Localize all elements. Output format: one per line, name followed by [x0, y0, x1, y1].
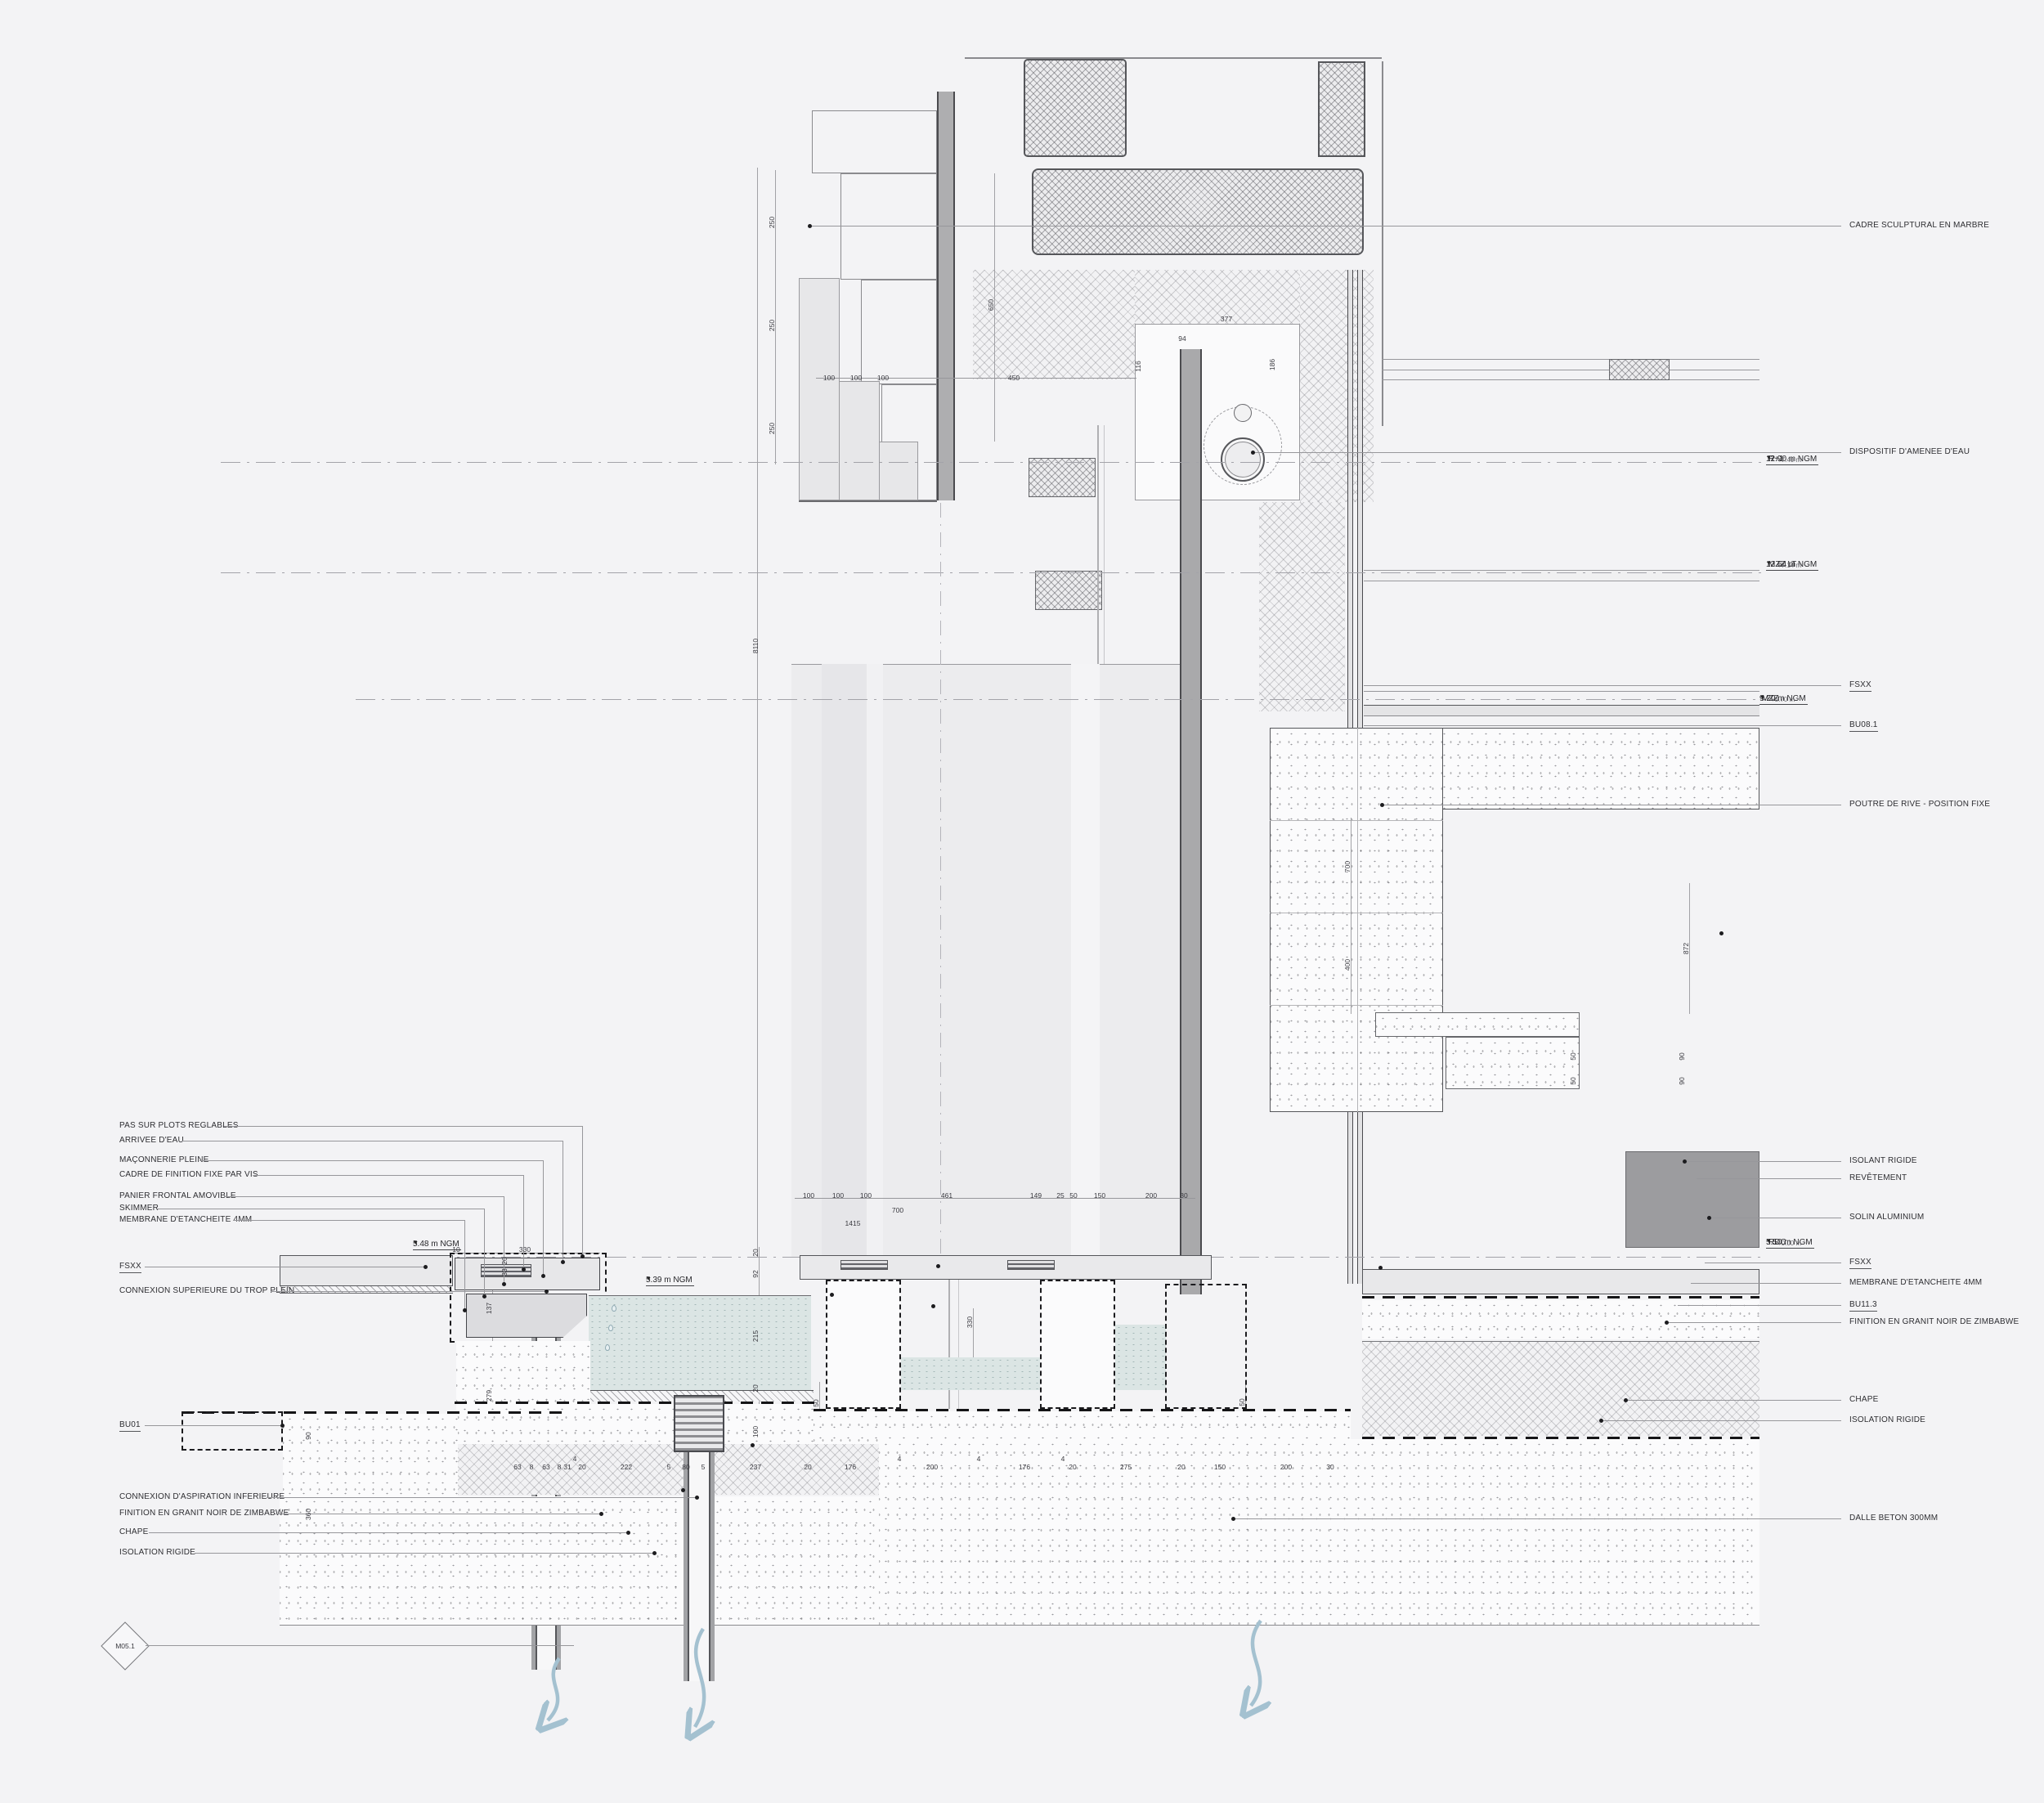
concrete-step-2: [1446, 1037, 1580, 1089]
slab-hatch-r1: [1609, 359, 1670, 380]
leader-dot: [931, 1304, 935, 1308]
leader-line: [199, 1160, 543, 1161]
wall-band-upper: [937, 92, 955, 500]
dimension-text: 100: [850, 374, 862, 382]
leader-dot: [502, 1282, 506, 1286]
leader-dot: [561, 1260, 565, 1264]
dimension-text: 100: [832, 1191, 844, 1200]
dimension-text: 650: [987, 299, 995, 311]
dimension-text: 200: [1145, 1191, 1157, 1200]
annotation-label: CONNEXION SUPERIEURE DU TROP PLEIN: [119, 1286, 294, 1296]
leader-dot: [626, 1531, 630, 1535]
dimension-text: 63: [513, 1463, 521, 1471]
pier-2: [1040, 1280, 1115, 1409]
leader-line: [1253, 452, 1841, 453]
annotation-label: FSXX: [119, 1262, 141, 1273]
leader-line: [145, 1425, 282, 1426]
detail-reference-leader: [146, 1645, 574, 1646]
leader-line: [1678, 1305, 1841, 1306]
leader-line: [254, 1175, 524, 1176]
elevation-offset: +0.00 m: [1766, 1240, 1801, 1247]
leader-dot: [424, 1265, 428, 1269]
dimension-text: 150: [1094, 1191, 1105, 1200]
leader-line-drop: [582, 1126, 583, 1256]
water-drop-icon: [608, 1325, 613, 1331]
dimension-text: 4: [1061, 1455, 1065, 1463]
dimension-text: 400: [1343, 959, 1351, 971]
dimension-text: 330: [966, 1316, 974, 1328]
dimension-text: 30: [1326, 1463, 1334, 1471]
dimension-text: 20: [500, 1257, 509, 1264]
leader-line: [224, 1196, 504, 1197]
slab-line-r1-a: [1382, 359, 1759, 360]
screed-under-pool: [458, 1404, 814, 1444]
dimension-text: 50: [812, 1399, 820, 1406]
leader-line-drop: [523, 1175, 524, 1269]
insulation-right: [1362, 1341, 1759, 1436]
block-b-gridline-v: [1357, 728, 1358, 1112]
leader-dot: [1683, 1159, 1687, 1164]
level-line-mzz: [356, 699, 1766, 700]
deck-underlayer: [280, 1286, 453, 1294]
annotation-label: PANIER FRONTAL AMOVIBLE: [119, 1191, 236, 1201]
slab-line-r1-c: [1382, 379, 1759, 380]
leader-dot: [545, 1289, 549, 1294]
dimension-text: 63: [542, 1463, 549, 1471]
dimension-text: 700: [1343, 861, 1351, 872]
dimension-text: 100: [823, 374, 835, 382]
mid-stripe-3: [867, 664, 883, 1257]
dimension-text: 222: [621, 1463, 632, 1471]
dimension-text: 250: [768, 217, 776, 228]
frame-cut-1: [1029, 458, 1096, 497]
coping-vent-2: [1007, 1260, 1055, 1270]
coping-vent-1: [840, 1260, 888, 1270]
leader-line: [809, 226, 1841, 226]
dimension-text: 8110: [751, 639, 760, 653]
dimension-text: 90: [1678, 1052, 1686, 1060]
annotation-label: FSXX: [1849, 1258, 1871, 1269]
detail-reference-diamond-icon[interactable]: M05.1: [101, 1621, 149, 1670]
elevation-value: 5.39 m NGM: [646, 1276, 694, 1286]
leader-line: [195, 1553, 654, 1554]
dimension-text: 872: [1682, 943, 1690, 954]
dimension-text: 80: [682, 1463, 689, 1471]
leader-dot: [482, 1294, 486, 1298]
step-fill-1: [799, 278, 840, 500]
leader-dot: [541, 1274, 545, 1278]
left-insulation-strip: [182, 1411, 283, 1451]
level-triangle-icon: ▼: [413, 1240, 419, 1246]
water-right-patch: [1115, 1325, 1166, 1390]
dimension-text: 50: [1238, 1398, 1246, 1406]
dimension-text: 150: [1214, 1463, 1226, 1471]
dimension-text: 31: [563, 1463, 571, 1471]
annotation-label: MEMBRANE D'ETANCHEITE 4MM: [1849, 1278, 1982, 1288]
plan-hatch-field-left: [973, 270, 1135, 379]
dimension-text: 275: [1120, 1463, 1132, 1471]
dimension-text: 50: [1569, 1052, 1577, 1060]
dimension-text: 4: [573, 1455, 577, 1463]
annotation-label: BU01: [119, 1420, 141, 1432]
plan-hatch-field-top: [1135, 270, 1300, 324]
pier-1: [826, 1280, 901, 1409]
dim-line-700-400: [1351, 818, 1351, 1014]
concrete-step-1: [1375, 1012, 1580, 1037]
dimension-text: 20: [751, 1249, 760, 1256]
mid-stripe-2: [1071, 664, 1100, 1257]
skimmer-membrane-outline: [450, 1253, 607, 1343]
pool-water: [589, 1295, 811, 1390]
fsxx-line-b: [1364, 691, 1759, 692]
dimension-text: 200: [1280, 1463, 1292, 1471]
dimension-text: 5: [667, 1463, 671, 1471]
dim-line-8110: [757, 168, 758, 1257]
annotation-label: CHAPE: [1849, 1395, 1878, 1405]
annotation-label: SOLIN ALUMINIUM: [1849, 1213, 1924, 1222]
chape-right: [1362, 1300, 1759, 1339]
leader-line: [182, 1141, 563, 1141]
annotation-label: DALLE BETON 300MM: [1849, 1514, 1938, 1523]
leader-line: [1666, 1322, 1841, 1323]
dimension-text: 186: [1268, 359, 1276, 370]
dimension-text: 250: [768, 423, 776, 434]
suction-pipe: [684, 1452, 715, 1681]
annotation-label: CHAPE: [119, 1527, 148, 1537]
plan-right-edge: [1382, 61, 1383, 426]
dimension-text: 100: [860, 1191, 872, 1200]
detail-reference-label: M05.1: [115, 1642, 135, 1650]
dimension-text: 92: [751, 1270, 760, 1277]
dimension-text: 279: [485, 1390, 493, 1402]
annotation-label: ISOLATION RIGIDE: [1849, 1415, 1925, 1425]
dim-line-250chain: [775, 170, 776, 464]
dimension-text: 20: [751, 1384, 760, 1392]
dimension-text: 377: [1221, 315, 1232, 323]
dimension-text: 4: [977, 1455, 981, 1463]
dimension-text: 25: [1056, 1191, 1064, 1200]
leader-dot: [681, 1488, 685, 1492]
leader-dot: [1707, 1216, 1711, 1220]
block-b-gridline-h3: [1270, 1005, 1443, 1006]
facade-line-b: [1104, 425, 1105, 664]
wall-foundation-outline: [1165, 1284, 1247, 1409]
leader-line: [1705, 1263, 1841, 1263]
dimension-text: 4: [898, 1455, 902, 1463]
block-b-gridline-h1: [1270, 820, 1443, 821]
step-fill-2: [839, 381, 880, 500]
dimension-text: 700: [892, 1206, 903, 1214]
leader-line: [1382, 805, 1841, 805]
aluminium-plinth: [1625, 1151, 1759, 1248]
dimension-text: 20: [1177, 1463, 1185, 1471]
leader-line: [1709, 1218, 1841, 1218]
dimension-text: 137: [485, 1303, 493, 1314]
leader-line: [1645, 725, 1841, 726]
leader-line: [157, 1209, 484, 1209]
dimension-text: 50: [1569, 1077, 1577, 1084]
leader-line-drop: [543, 1160, 544, 1276]
leader-dot: [936, 1264, 940, 1268]
drain-connector: [674, 1395, 724, 1452]
annotation-label: ARRIVEE D'EAU: [119, 1136, 184, 1146]
leader-line: [145, 1267, 425, 1267]
step-outline-0: [812, 110, 937, 173]
leader-dot: [599, 1512, 603, 1516]
dimension-text: 8: [530, 1463, 534, 1471]
dimension-text: 94: [1178, 334, 1186, 343]
marble-panel-long: [1032, 168, 1364, 255]
dimension-text: 8: [558, 1463, 562, 1471]
frame-cut-2: [1035, 571, 1102, 610]
water-drop-icon: [612, 1305, 616, 1312]
leader-dot: [1231, 1517, 1235, 1521]
dimension-text: 200: [926, 1463, 938, 1471]
concrete-block-b: [1270, 728, 1443, 1112]
leader-dot: [652, 1551, 657, 1555]
leader-dot: [751, 1443, 755, 1447]
dimension-text: 50: [1069, 1191, 1077, 1200]
dimension-text: 90: [1678, 1077, 1686, 1084]
elevation-offset: +7.14 m: [1766, 562, 1801, 569]
dimension-text: 90: [304, 1432, 312, 1439]
annotation-label: DISPOSITIF D'AMENEE D'EAU: [1849, 447, 1970, 457]
right-paving-slab: [1362, 1269, 1759, 1294]
step-outline-2: [861, 280, 937, 384]
leader-dot: [522, 1267, 526, 1272]
dimension-text: 176: [1019, 1463, 1030, 1471]
architectural-detail-drawing: M05.1 CADRE SCULPTURAL EN MARBREDISPOSIT…: [0, 0, 2044, 1803]
leader-dot: [1380, 803, 1384, 807]
leader-dot: [463, 1308, 467, 1312]
water-drop-icon: [605, 1344, 610, 1351]
wall-band-main: [1180, 349, 1202, 1294]
leader-line: [1691, 1283, 1841, 1284]
axis-line-vertical: [940, 503, 941, 1257]
leader-line: [1684, 1161, 1841, 1162]
leader-line: [1586, 685, 1841, 686]
membrane-right: [1362, 1296, 1759, 1298]
leader-line: [275, 1514, 601, 1514]
leader-line: [233, 1220, 464, 1221]
pipe-circle-large: [1221, 437, 1265, 482]
level-line-mzzlt: [221, 572, 1766, 573]
dimension-text: 10: [452, 1245, 459, 1254]
annotation-label: CADRE SCULPTURAL EN MARBRE: [1849, 221, 1989, 231]
leader-dot: [1599, 1419, 1603, 1423]
block-b-gridline-h2: [1270, 913, 1443, 913]
dimension-text: 215: [751, 1330, 760, 1342]
dimension-text: 176: [845, 1463, 856, 1471]
leader-dot: [580, 1254, 585, 1258]
leader-dot: [1624, 1398, 1628, 1402]
dimension-text: 237: [750, 1463, 761, 1471]
dimension-text: 250: [768, 320, 776, 331]
membrane-pool-floor: [455, 1402, 814, 1404]
leader-line: [271, 1291, 546, 1292]
leader-dot: [830, 1293, 834, 1297]
leader-line-drop: [484, 1209, 485, 1296]
leader-dot: [808, 224, 812, 228]
leader-line: [1697, 1178, 1841, 1179]
dimension-text: 20: [804, 1463, 811, 1471]
dimension-text: 116: [1134, 361, 1142, 372]
leader-dot: [280, 1424, 285, 1428]
dimension-text: 33: [500, 1268, 509, 1276]
leader-dot: [1719, 931, 1724, 935]
mid-stripe-1: [822, 664, 867, 1257]
annotation-label: REVÊTEMENT: [1849, 1173, 1907, 1183]
marble-panel-right: [1318, 61, 1365, 157]
leader-dot: [695, 1496, 699, 1500]
leader-line: [1233, 1518, 1841, 1519]
dimension-text: 360: [304, 1509, 312, 1520]
pipe-circle-small: [1234, 404, 1252, 422]
plan-hatch-column: [1259, 502, 1345, 711]
dimension-text: 330: [519, 1245, 531, 1254]
annotation-label: ISOLANT RIGIDE: [1849, 1156, 1917, 1166]
annotation-label: MAÇONNERIE PLEINE: [119, 1155, 209, 1165]
dimension-text: 149: [1030, 1191, 1042, 1200]
facade-line-a: [1097, 425, 1099, 664]
dimension-text: 461: [941, 1191, 953, 1200]
annotation-label: SKIMMER: [119, 1204, 159, 1213]
dimension-text: 20: [578, 1463, 585, 1471]
leader-line: [224, 1126, 582, 1127]
annotation-label: CADRE DE FINITION FIXE PAR VIS: [119, 1170, 258, 1180]
dim-line-mid-row: [795, 1198, 1195, 1199]
leader-dot: [1665, 1321, 1669, 1325]
leader-line: [1625, 1400, 1841, 1401]
leader-dot: [1378, 1266, 1383, 1270]
annotation-label: FINITION EN GRANIT NOIR DE ZIMBABWE: [1849, 1317, 2019, 1327]
elevation-offset: +7.40 m: [1766, 456, 1801, 464]
marble-panel-top: [1024, 59, 1127, 157]
deck-slab: [280, 1255, 453, 1286]
annotation-label: ISOLATION RIGIDE: [119, 1548, 195, 1558]
dimension-text: 100: [877, 374, 889, 382]
dim-line-top-row: [816, 378, 1136, 379]
leader-dot: [1251, 451, 1255, 455]
annotation-label: CONNEXION D'ASPIRATION INFERIEURE: [119, 1492, 285, 1502]
dimension-text: 1415: [845, 1219, 861, 1227]
mzz-floor-slab: [1364, 705, 1759, 716]
dimension-text: 450: [1008, 374, 1020, 382]
leader-line-drop: [563, 1141, 563, 1262]
leader-line: [267, 1497, 697, 1498]
annotation-label: BU11.3: [1849, 1300, 1877, 1312]
dimension-text: 100: [751, 1426, 760, 1437]
annotation-label: FINITION EN GRANIT NOIR DE ZIMBABWE: [119, 1509, 289, 1518]
flow-arrow-icon: [1251, 1621, 1261, 1706]
annotation-label: BU08.1: [1849, 720, 1878, 732]
dimension-text: 20: [1069, 1463, 1076, 1471]
leader-line: [149, 1532, 628, 1533]
leader-line: [1601, 1420, 1841, 1421]
water-between-piers: [901, 1357, 1040, 1390]
dimension-text: 30: [1180, 1191, 1187, 1200]
step-outline-1: [840, 173, 937, 280]
bottom-concrete-right: [879, 1439, 1759, 1626]
annotation-label: PAS SUR PLOTS REGLABLES: [119, 1121, 239, 1131]
step-fill-3: [879, 442, 918, 500]
plan-bottom-line: [799, 500, 937, 502]
annotation-label: FSXX: [1849, 680, 1871, 692]
elevation-offset: +3.70 m: [1759, 696, 1795, 703]
plan-top-line: [965, 57, 1382, 59]
level-triangle-icon: ▼: [646, 1276, 652, 1282]
dimension-text: 100: [803, 1191, 814, 1200]
bottom-concrete-left: [280, 1496, 879, 1626]
leader-line-drop: [464, 1220, 465, 1310]
annotation-label: POUTRE DE RIVE - POSITION FIXE: [1849, 800, 1990, 810]
left-concrete-block: [283, 1414, 458, 1496]
slab-line-r1-b: [1382, 370, 1759, 370]
dimension-text: 5: [702, 1463, 706, 1471]
level-line-r1: [221, 462, 1766, 463]
